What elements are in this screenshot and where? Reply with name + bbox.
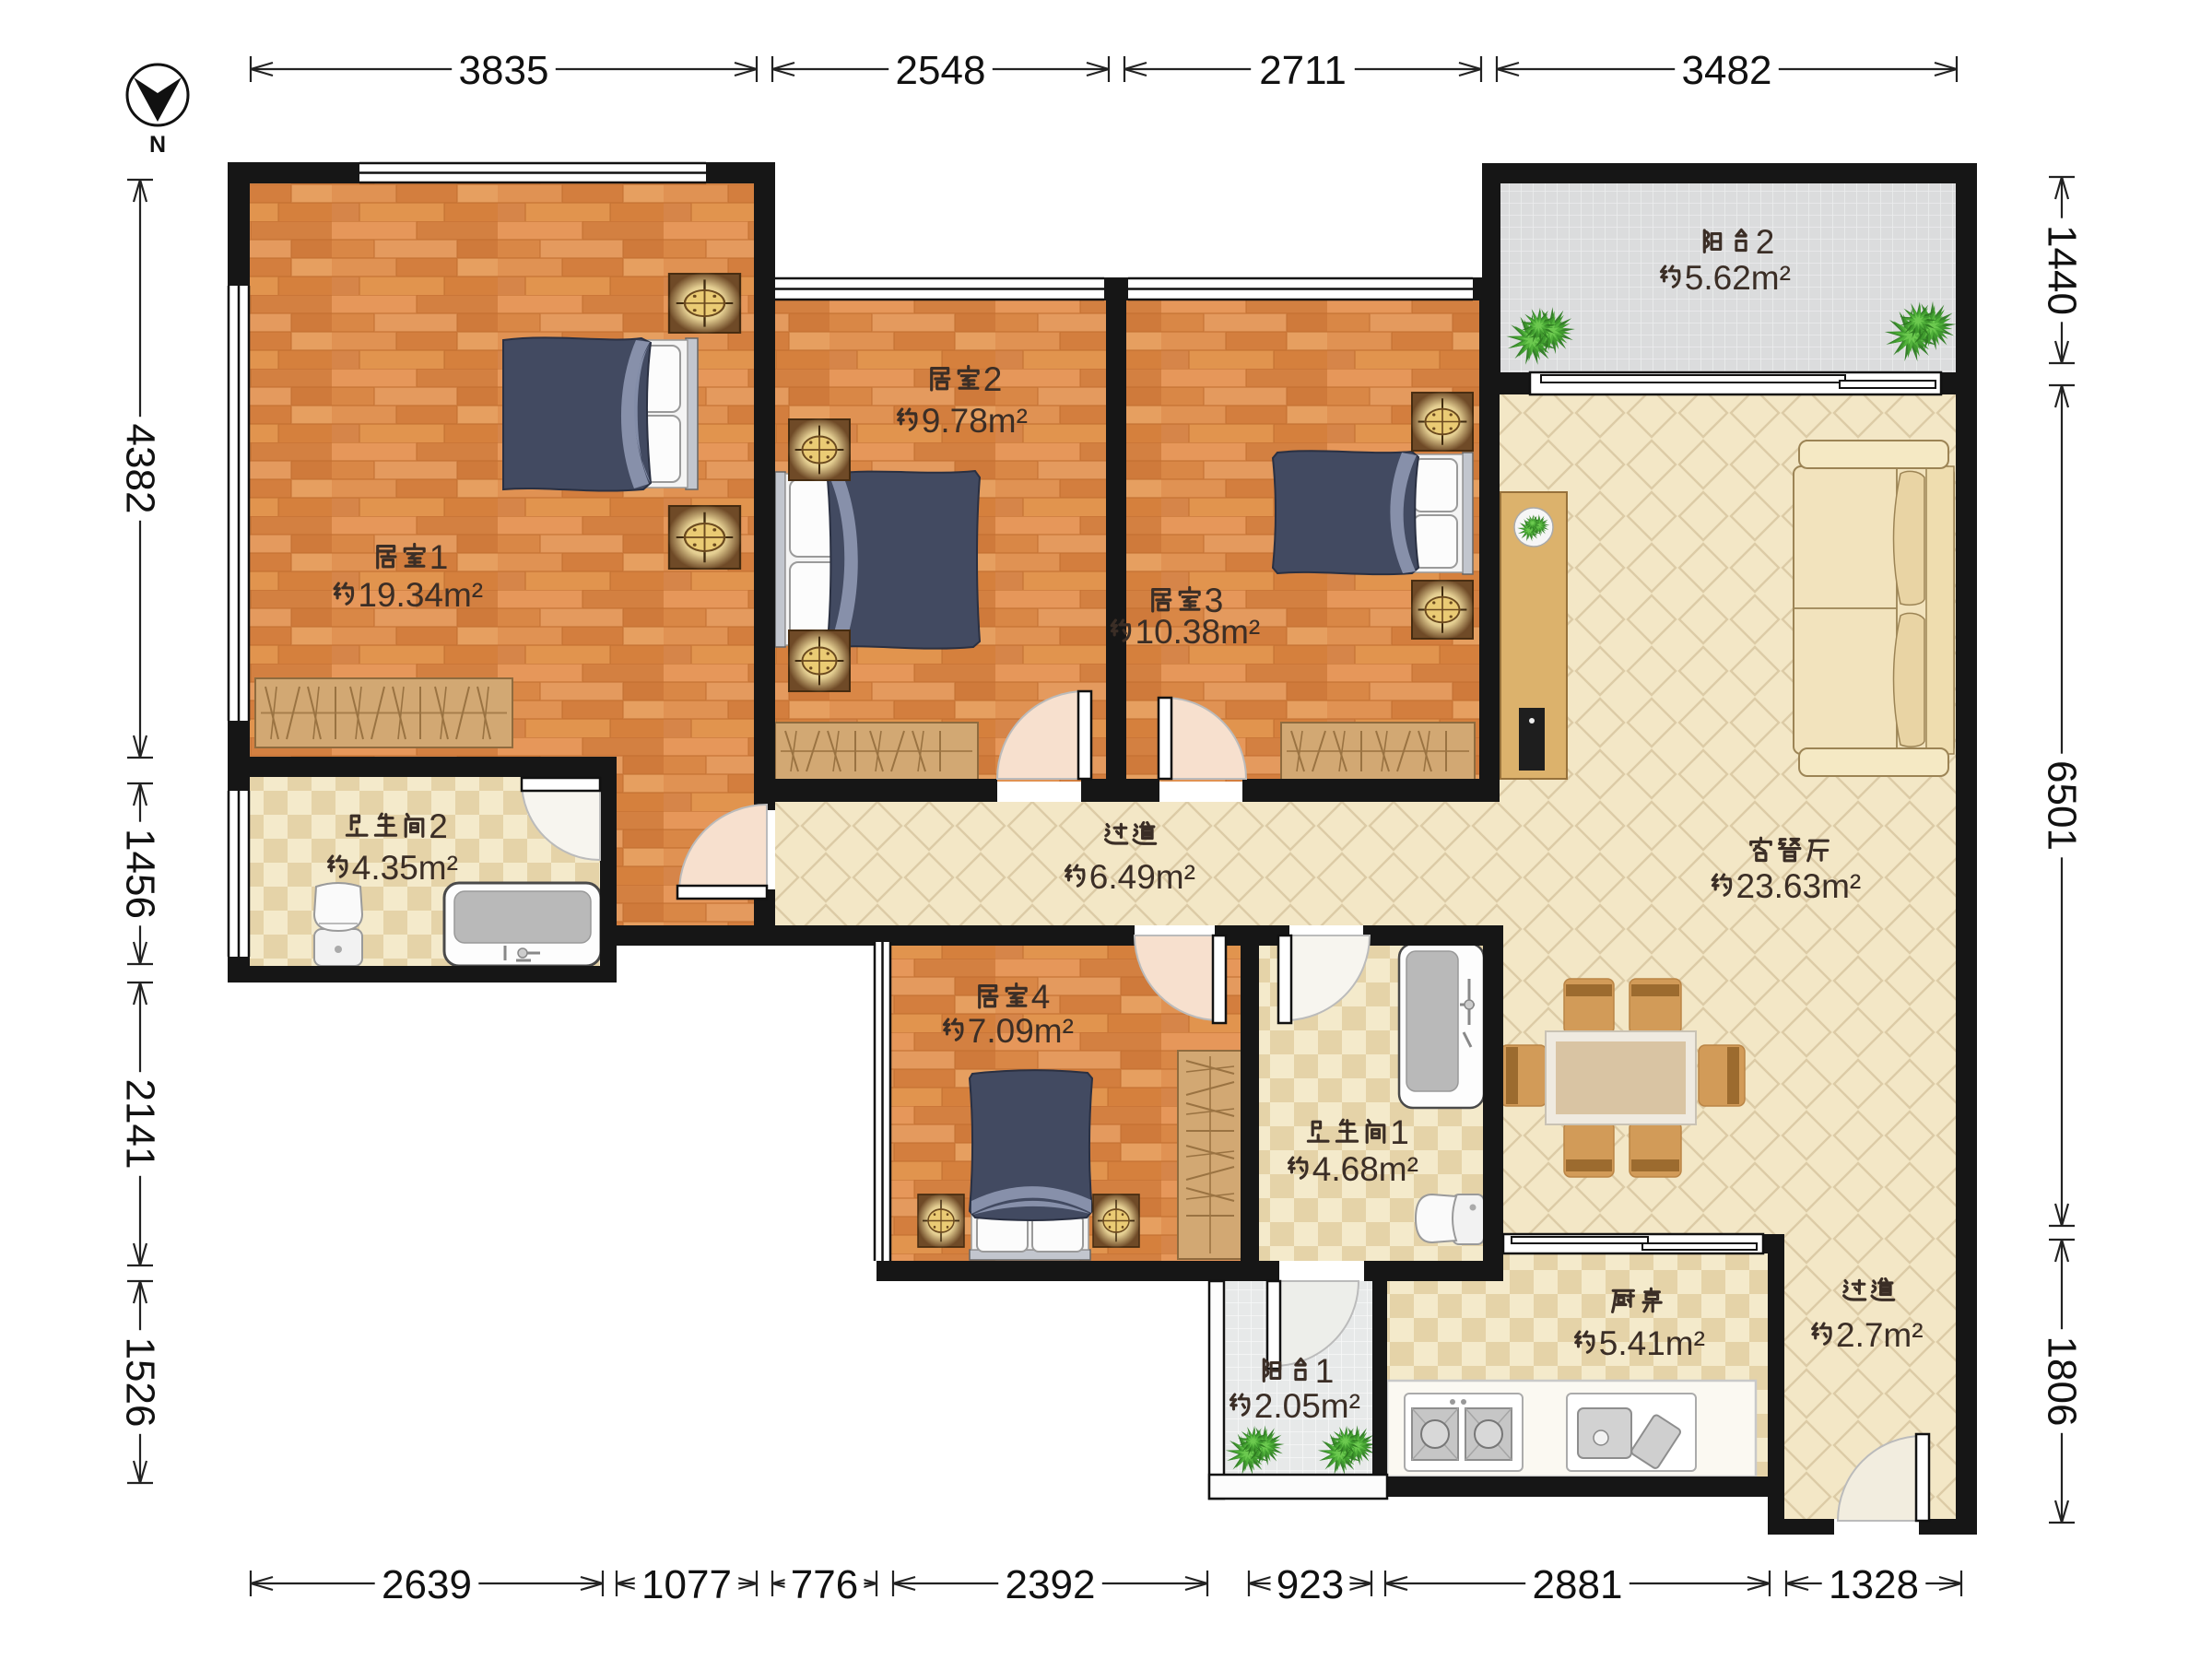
- svg-text:2.7m²: 2.7m²: [1836, 1316, 1924, 1354]
- svg-text:2.05m²: 2.05m²: [1254, 1387, 1360, 1425]
- svg-text:1526: 1526: [118, 1337, 163, 1428]
- svg-text:1077: 1077: [641, 1562, 732, 1607]
- svg-text:4382: 4382: [118, 424, 163, 514]
- svg-text:2: 2: [1756, 223, 1775, 261]
- svg-text:5.62m²: 5.62m²: [1685, 259, 1791, 297]
- svg-text:19.34m²: 19.34m²: [358, 576, 483, 614]
- svg-text:6501: 6501: [2040, 760, 2085, 851]
- svg-text:5.41m²: 5.41m²: [1599, 1324, 1705, 1362]
- svg-text:3835: 3835: [459, 48, 549, 93]
- svg-text:1456: 1456: [118, 829, 163, 919]
- svg-text:6.49m²: 6.49m²: [1089, 858, 1195, 896]
- svg-text:2881: 2881: [1533, 1562, 1623, 1607]
- svg-text:2548: 2548: [896, 48, 986, 93]
- svg-text:9.78m²: 9.78m²: [922, 402, 1028, 440]
- svg-text:2639: 2639: [382, 1562, 472, 1607]
- svg-text:7.09m²: 7.09m²: [968, 1012, 1074, 1050]
- svg-text:4.35m²: 4.35m²: [352, 849, 458, 887]
- svg-text:1: 1: [1390, 1113, 1409, 1151]
- svg-text:4.68m²: 4.68m²: [1312, 1150, 1418, 1188]
- svg-text:1328: 1328: [1829, 1562, 1919, 1607]
- svg-text:1806: 1806: [2040, 1336, 2085, 1427]
- svg-text:2711: 2711: [1259, 48, 1347, 93]
- svg-text:3482: 3482: [1682, 48, 1772, 93]
- svg-text:4: 4: [1031, 978, 1051, 1016]
- svg-text:1: 1: [429, 538, 449, 576]
- svg-text:2: 2: [983, 360, 1003, 398]
- svg-text:10.38m²: 10.38m²: [1135, 613, 1261, 651]
- svg-text:923: 923: [1277, 1562, 1344, 1607]
- svg-text:2: 2: [429, 807, 448, 845]
- svg-text:N: N: [149, 132, 166, 158]
- svg-text:1: 1: [1315, 1352, 1335, 1390]
- svg-text:1440: 1440: [2040, 225, 2085, 315]
- svg-text:23.63m²: 23.63m²: [1736, 867, 1862, 905]
- svg-text:2141: 2141: [118, 1079, 163, 1170]
- svg-text:2392: 2392: [1006, 1562, 1096, 1607]
- svg-text:776: 776: [791, 1562, 858, 1607]
